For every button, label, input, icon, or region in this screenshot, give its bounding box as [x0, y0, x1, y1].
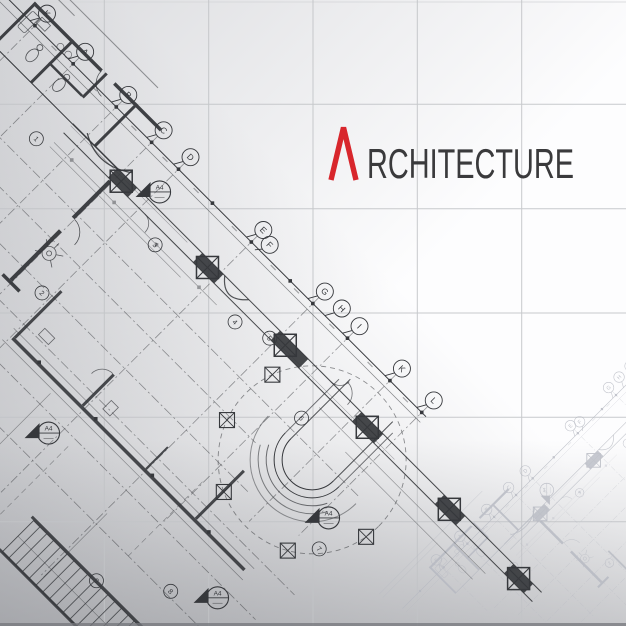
blueprint-poster: A4 — [0, 0, 626, 626]
logo-text: RCHITECTURE — [367, 140, 574, 187]
blueprint-image: A4 — [0, 0, 626, 626]
